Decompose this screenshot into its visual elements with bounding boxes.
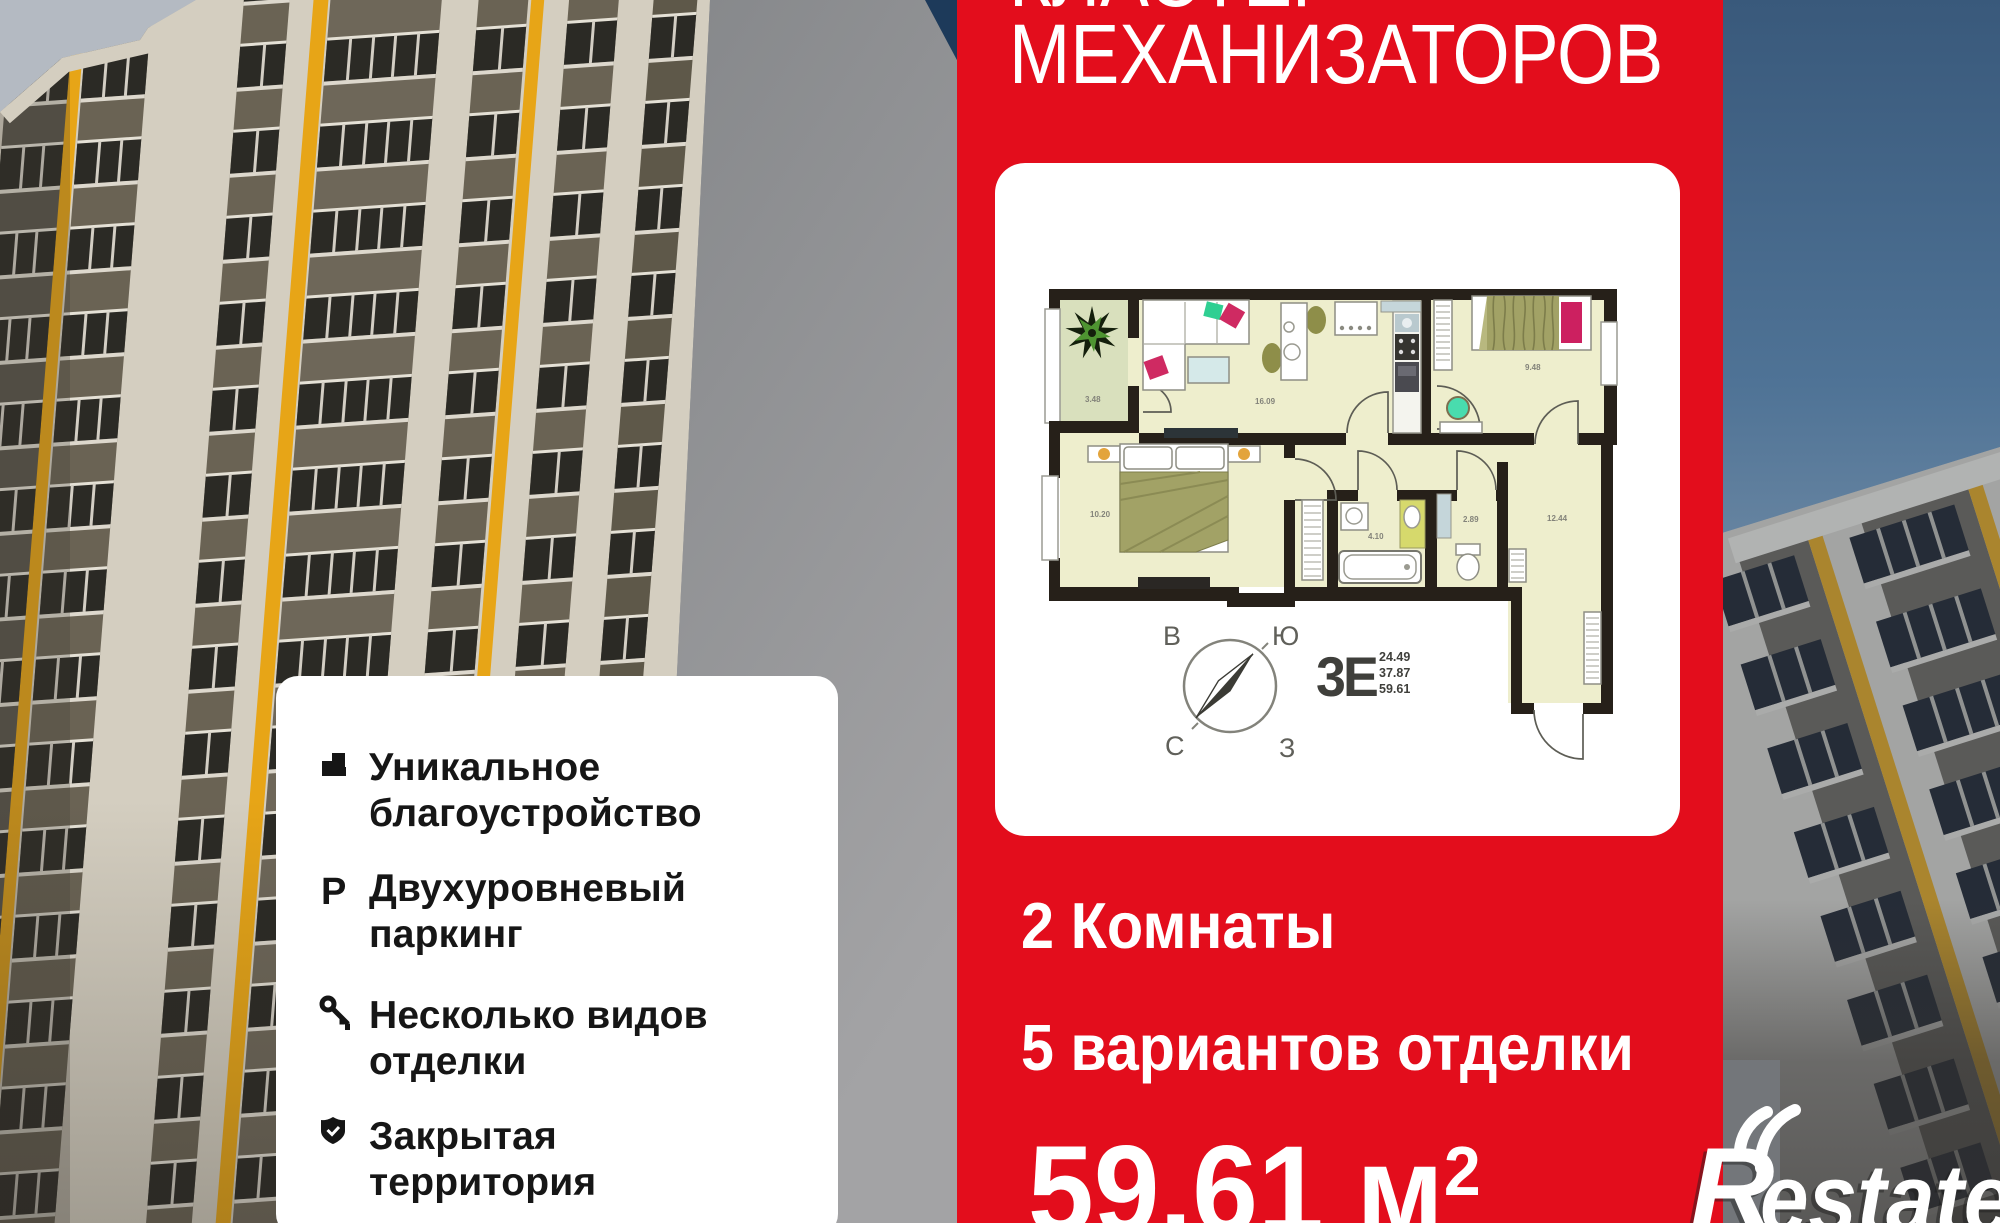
svg-text:9.48: 9.48 xyxy=(1525,363,1541,372)
svg-text:Р: Р xyxy=(321,871,346,913)
svg-text:С: С xyxy=(1165,731,1185,761)
svg-text:3.48: 3.48 xyxy=(1085,395,1101,404)
svg-text:3Е: 3Е xyxy=(1316,645,1377,708)
svg-text:2.89: 2.89 xyxy=(1463,515,1479,524)
svg-text:З: З xyxy=(1279,733,1295,763)
svg-text:estate: estate xyxy=(1760,1144,2000,1223)
svg-text:Ю: Ю xyxy=(1272,621,1299,651)
svg-text:10.20: 10.20 xyxy=(1090,510,1111,519)
svg-text:37.87: 37.87 xyxy=(1379,666,1410,680)
svg-text:12.44: 12.44 xyxy=(1547,514,1568,523)
svg-text:59.61: 59.61 xyxy=(1379,682,1410,696)
svg-text:16.09: 16.09 xyxy=(1255,397,1276,406)
svg-text:4.10: 4.10 xyxy=(1368,532,1384,541)
svg-text:В: В xyxy=(1163,621,1181,651)
svg-text:24.49: 24.49 xyxy=(1379,650,1410,664)
